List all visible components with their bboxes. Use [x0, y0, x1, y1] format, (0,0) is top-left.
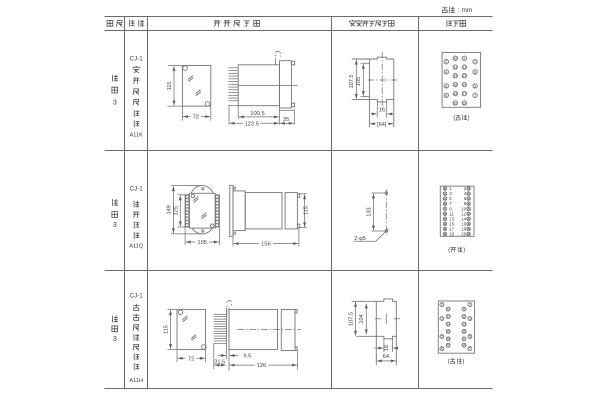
svg-text:7: 7: [474, 94, 476, 98]
svg-text:9: 9: [463, 307, 465, 311]
svg-text:7: 7: [469, 347, 471, 351]
svg-text:35: 35: [283, 117, 289, 123]
svg-text:1: 1: [469, 303, 471, 307]
svg-text:11: 11: [462, 65, 466, 69]
svg-text:126: 126: [257, 363, 267, 369]
svg-text:(: (: [448, 248, 450, 254]
svg-text:19: 19: [449, 232, 454, 237]
svg-text:122.5: 122.5: [244, 121, 259, 127]
svg-text:12: 12: [446, 315, 450, 319]
svg-text:20: 20: [461, 232, 466, 237]
svg-text:107.5: 107.5: [349, 75, 355, 89]
svg-text:115: 115: [304, 206, 310, 215]
svg-text:[64]: [64]: [377, 122, 387, 128]
svg-text:13: 13: [462, 322, 466, 326]
svg-text:(: (: [448, 359, 450, 365]
svg-text:3: 3: [113, 222, 117, 229]
svg-text:125: 125: [174, 206, 180, 215]
svg-text:A11H: A11H: [129, 378, 143, 384]
svg-text::: :: [457, 7, 459, 14]
svg-text:104: 104: [359, 314, 365, 323]
svg-text:19: 19: [462, 101, 466, 105]
svg-text:A11Q: A11Q: [129, 243, 144, 249]
svg-text:): ): [462, 359, 464, 365]
svg-text:A11K: A11K: [130, 133, 144, 139]
svg-text:16: 16: [384, 345, 390, 351]
svg-text:18: 18: [446, 337, 450, 341]
svg-text:5: 5: [474, 84, 476, 88]
svg-text:mm: mm: [462, 7, 473, 14]
svg-text:115: 115: [167, 82, 173, 91]
svg-text:): ): [463, 248, 465, 254]
svg-text:8: 8: [445, 94, 447, 98]
svg-text:64: 64: [383, 354, 390, 360]
svg-text:10: 10: [446, 307, 450, 311]
svg-text:6: 6: [445, 84, 447, 88]
svg-text:149: 149: [167, 205, 173, 214]
svg-text:4: 4: [441, 317, 443, 321]
svg-text:3: 3: [474, 70, 476, 74]
svg-text:1: 1: [474, 60, 476, 64]
svg-text:9: 9: [463, 57, 465, 61]
svg-text:20: 20: [446, 343, 450, 347]
svg-text:12: 12: [453, 65, 457, 69]
svg-text:11: 11: [462, 315, 466, 319]
svg-text:3: 3: [469, 317, 471, 321]
svg-text:2: 2: [441, 303, 443, 307]
svg-text:3: 3: [113, 336, 117, 343]
svg-text:(: (: [453, 116, 455, 122]
svg-text:17: 17: [462, 337, 466, 341]
svg-text:72: 72: [193, 115, 199, 121]
svg-text:20: 20: [453, 101, 457, 105]
svg-text:18: 18: [453, 92, 457, 96]
svg-text:133: 133: [367, 207, 373, 216]
svg-text:4: 4: [445, 70, 447, 74]
svg-text:15: 15: [462, 83, 466, 87]
svg-text:107.5: 107.5: [348, 312, 354, 326]
svg-text:3: 3: [113, 99, 117, 106]
svg-text:105: 105: [197, 240, 207, 246]
svg-text:10: 10: [453, 57, 457, 61]
svg-text:72: 72: [188, 356, 194, 362]
svg-text:105: 105: [356, 77, 362, 86]
svg-text:16: 16: [379, 108, 385, 114]
svg-text:31.5: 31.5: [214, 359, 225, 365]
svg-text:15: 15: [462, 330, 466, 334]
svg-text:8: 8: [441, 347, 443, 351]
svg-text:5: 5: [469, 335, 471, 339]
svg-text:17: 17: [462, 92, 466, 96]
svg-text:14: 14: [446, 322, 450, 326]
svg-text:19: 19: [462, 343, 466, 347]
svg-text:CJ-1: CJ-1: [130, 185, 144, 192]
svg-text:9.5: 9.5: [244, 353, 252, 359]
svg-text:115: 115: [164, 325, 170, 334]
svg-text:16: 16: [453, 83, 457, 87]
svg-text:156: 156: [261, 242, 271, 248]
svg-text:CJ-1: CJ-1: [130, 293, 144, 300]
svg-text:16: 16: [446, 330, 450, 334]
svg-text:): ): [468, 116, 470, 122]
svg-text:100.5: 100.5: [250, 111, 265, 117]
svg-text:2: 2: [445, 60, 447, 64]
svg-text:CJ-1: CJ-1: [130, 56, 144, 63]
svg-text:14: 14: [453, 74, 457, 78]
svg-text:13: 13: [462, 74, 466, 78]
svg-text:6: 6: [441, 335, 443, 339]
